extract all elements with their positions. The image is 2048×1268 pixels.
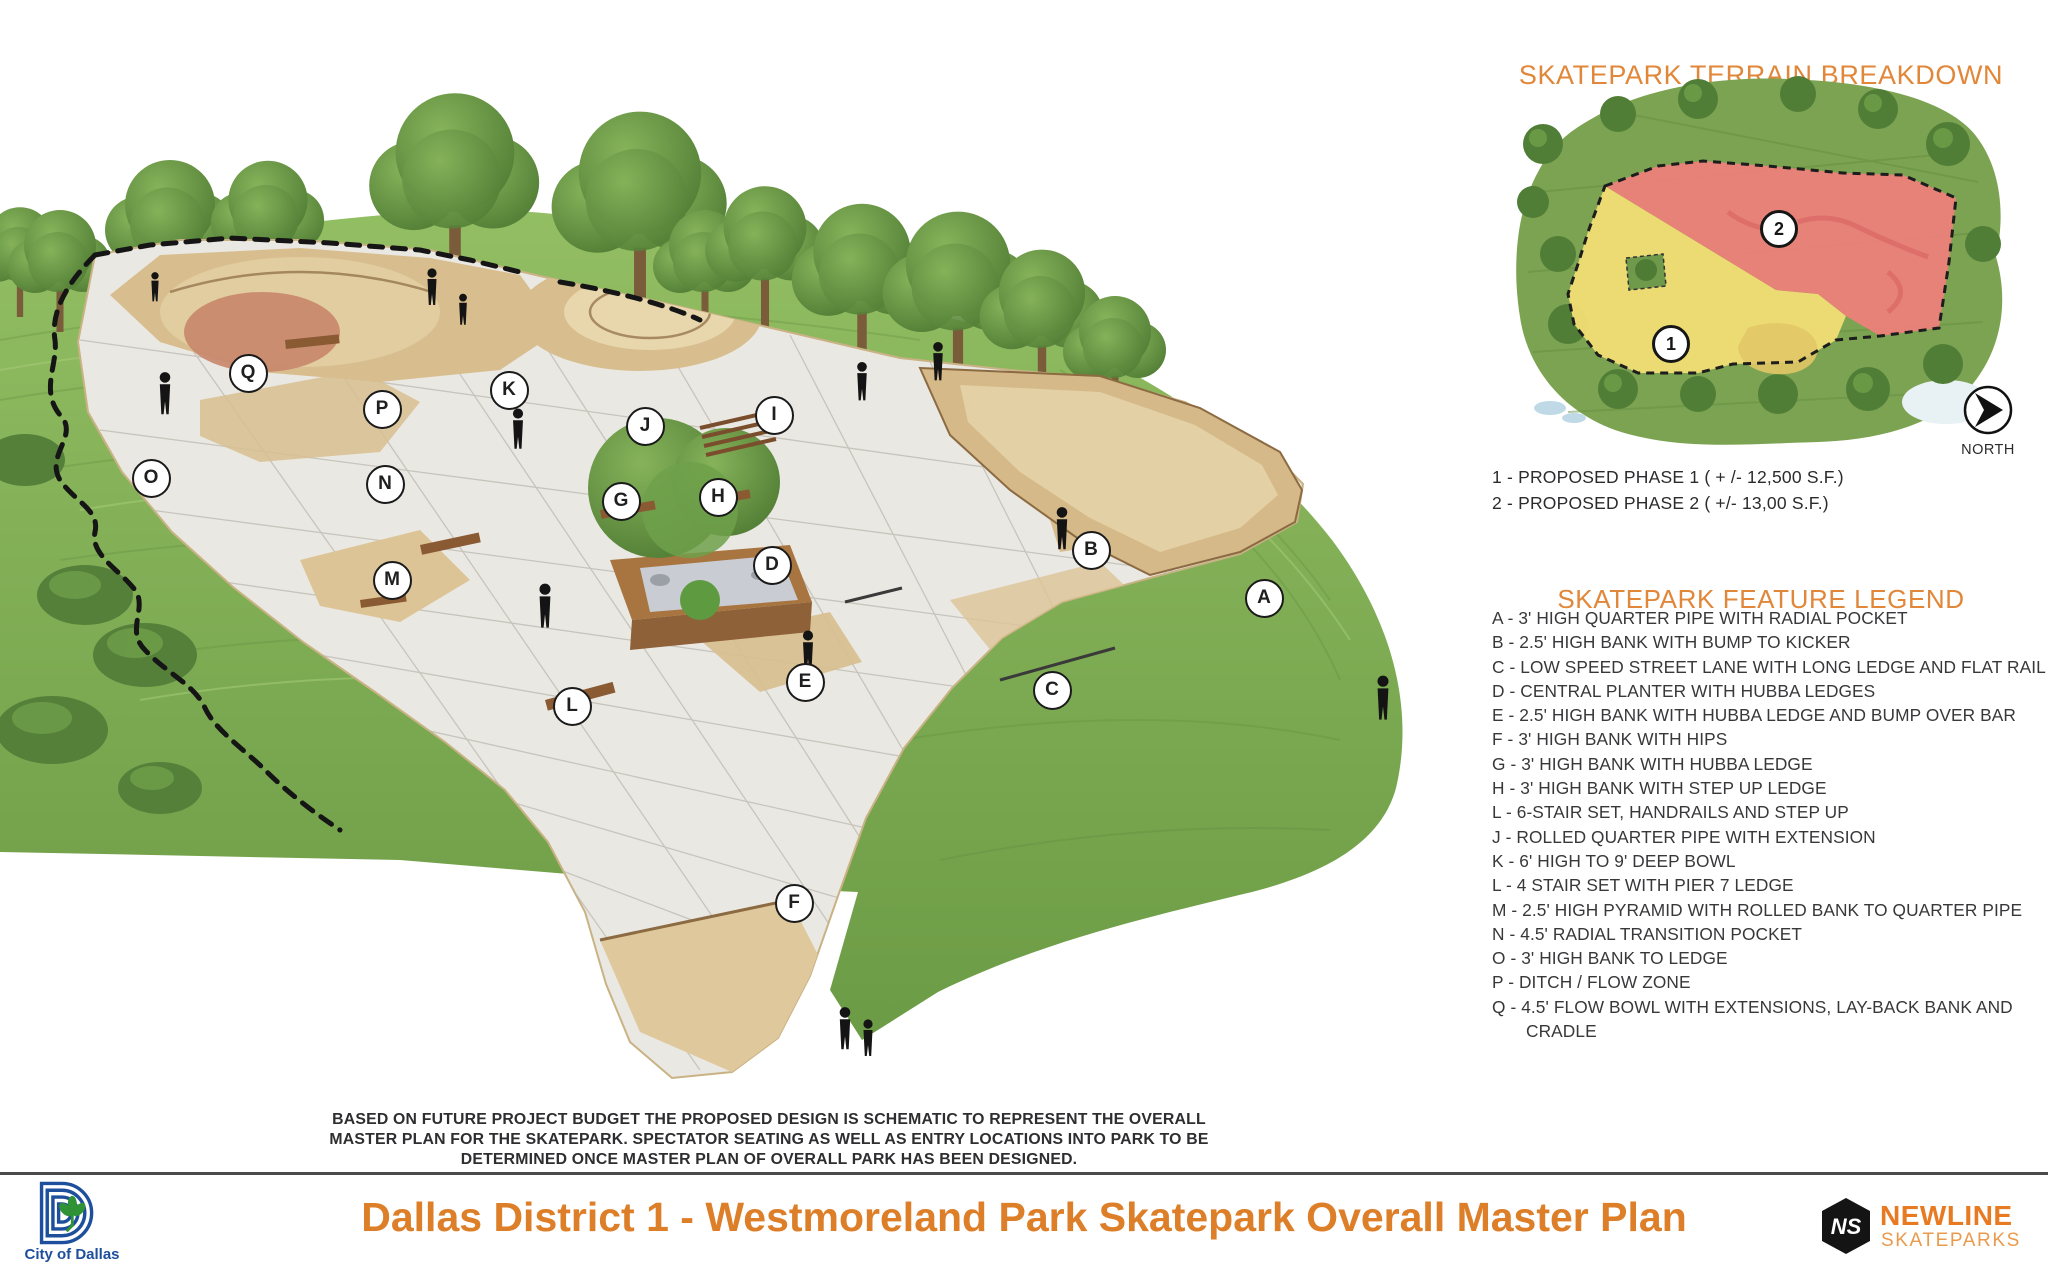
legend-item: K - 6' HIGH TO 9' DEEP BOWL	[1492, 849, 2048, 873]
newline-logo-icon: NS	[1818, 1196, 1874, 1256]
terrain-minimap	[1498, 72, 2016, 456]
legend-item: P - DITCH / FLOW ZONE	[1492, 970, 2048, 994]
terrain-minimap-art	[1498, 72, 2016, 456]
svg-text:NS: NS	[1831, 1214, 1862, 1239]
newline-wordmark-sub: SKATEPARKS	[1881, 1230, 2021, 1252]
north-label: NORTH	[1958, 442, 2018, 458]
plan-title: Dallas District 1 - Westmoreland Park Sk…	[0, 1194, 2048, 1241]
master-plan-board: SKATEPARK TERRAIN BREAKDOWN	[0, 0, 2048, 1268]
phase-note: 2 - PROPOSED PHASE 2 ( +/- 13,00 S.F.)	[1492, 490, 2048, 516]
city-of-dallas-caption: City of Dallas	[12, 1246, 132, 1263]
legend-item: C - LOW SPEED STREET LANE WITH LONG LEDG…	[1492, 655, 2048, 679]
site-rendering-art	[0, 40, 1480, 1105]
legend-item: A - 3' HIGH QUARTER PIPE WITH RADIAL POC…	[1492, 606, 2048, 630]
legend-item: D - CENTRAL PLANTER WITH HUBBA LEDGES	[1492, 679, 2048, 703]
site-rendering	[0, 40, 1480, 1105]
legend-item: F - 3' HIGH BANK WITH HIPS	[1492, 727, 2048, 751]
phase-note: 1 - PROPOSED PHASE 1 ( + /- 12,500 S.F.)	[1492, 464, 2048, 490]
disclaimer: BASED ON FUTURE PROJECT BUDGET THE PROPO…	[244, 1110, 1294, 1170]
legend-item: O - 3' HIGH BANK TO LEDGE	[1492, 946, 2048, 970]
legend-item: L - 4 STAIR SET WITH PIER 7 LEDGE	[1492, 873, 2048, 897]
newline-wordmark: NEWLINE	[1880, 1200, 2013, 1232]
north-arrow-icon	[1962, 384, 2014, 436]
legend-item: B - 2.5' HIGH BANK WITH BUMP TO KICKER	[1492, 630, 2048, 654]
legend-item: G - 3' HIGH BANK WITH HUBBA LEDGE	[1492, 752, 2048, 776]
legend-item: N - 4.5' RADIAL TRANSITION POCKET	[1492, 922, 2048, 946]
phase-notes: 1 - PROPOSED PHASE 1 ( + /- 12,500 S.F.)…	[1492, 464, 2048, 516]
legend-item: Q - 4.5' FLOW BOWL WITH EXTENSIONS, LAY-…	[1492, 995, 2048, 1044]
disclaimer-line: DETERMINED ONCE MASTER PLAN OF OVERALL P…	[244, 1150, 1294, 1170]
legend-item: E - 2.5' HIGH BANK WITH HUBBA LEDGE AND …	[1492, 703, 2048, 727]
footer-divider	[0, 1172, 2048, 1175]
legend-item: L - 6-STAIR SET, HANDRAILS AND STEP UP	[1492, 800, 2048, 824]
disclaimer-line: MASTER PLAN FOR THE SKATEPARK. SPECTATOR…	[244, 1130, 1294, 1150]
disclaimer-line: BASED ON FUTURE PROJECT BUDGET THE PROPO…	[244, 1110, 1294, 1130]
legend-item: M - 2.5' HIGH PYRAMID WITH ROLLED BANK T…	[1492, 898, 2048, 922]
legend-list: A - 3' HIGH QUARTER PIPE WITH RADIAL POC…	[1492, 606, 2048, 1043]
legend-item: H - 3' HIGH BANK WITH STEP UP LEDGE	[1492, 776, 2048, 800]
legend-item: J - ROLLED QUARTER PIPE WITH EXTENSION	[1492, 825, 2048, 849]
north-indicator: NORTH	[1958, 384, 2018, 458]
